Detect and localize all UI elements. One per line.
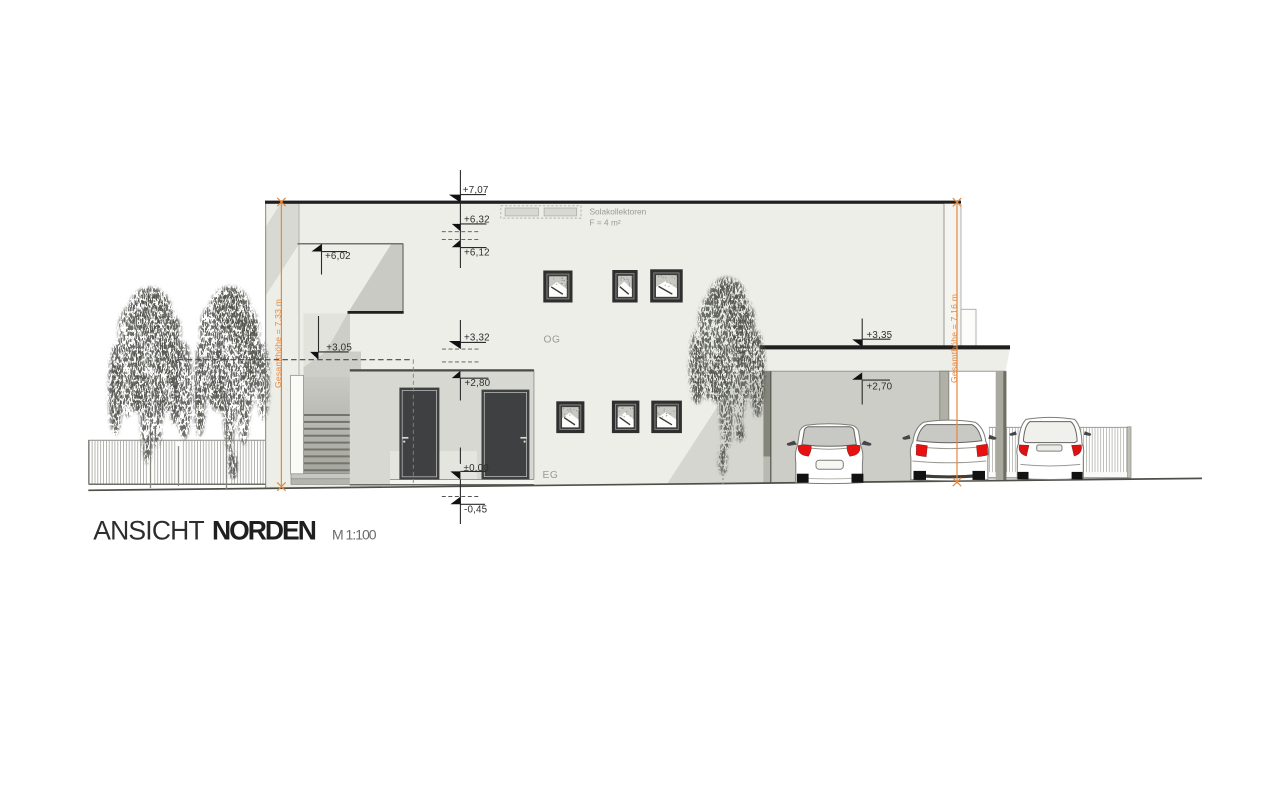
svg-text:Solakollektoren: Solakollektoren [590, 207, 647, 217]
svg-text:NORDEN: NORDEN [212, 516, 316, 546]
svg-text:+7,07: +7,07 [463, 185, 489, 196]
svg-text:-0,45: -0,45 [464, 504, 488, 515]
svg-text:Gesamthöhe = 7,33 m: Gesamthöhe = 7,33 m [273, 299, 283, 388]
svg-text:OG: OG [544, 335, 561, 346]
svg-text:Gesamthöhe = 7,16 m: Gesamthöhe = 7,16 m [949, 294, 959, 383]
svg-text:+6,12: +6,12 [464, 247, 490, 258]
svg-text:M 1:100: M 1:100 [332, 527, 377, 543]
svg-text:F = 4 m²: F = 4 m² [590, 217, 621, 227]
svg-text:+2,70: +2,70 [867, 381, 893, 392]
svg-text:EG: EG [543, 470, 559, 481]
svg-text:+2,80: +2,80 [465, 378, 491, 389]
svg-text:±0,00: ±0,00 [464, 463, 490, 474]
svg-text:ANSICHT: ANSICHT [93, 516, 204, 546]
svg-text:+6,02: +6,02 [325, 251, 351, 262]
